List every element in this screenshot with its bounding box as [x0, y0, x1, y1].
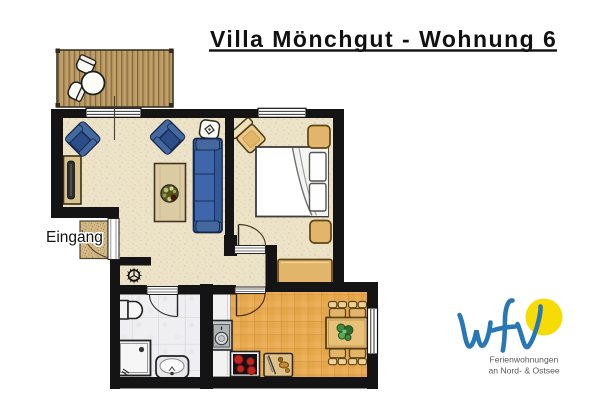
- svg-text:Ferienwohnungen: Ferienwohnungen: [490, 355, 559, 365]
- svg-text:Villa Mönchgut - Wohnung 6: Villa Mönchgut - Wohnung 6: [210, 26, 557, 52]
- svg-text:Eingang: Eingang: [46, 229, 103, 246]
- svg-text:an Nord- & Ostsee: an Nord- & Ostsee: [489, 365, 560, 375]
